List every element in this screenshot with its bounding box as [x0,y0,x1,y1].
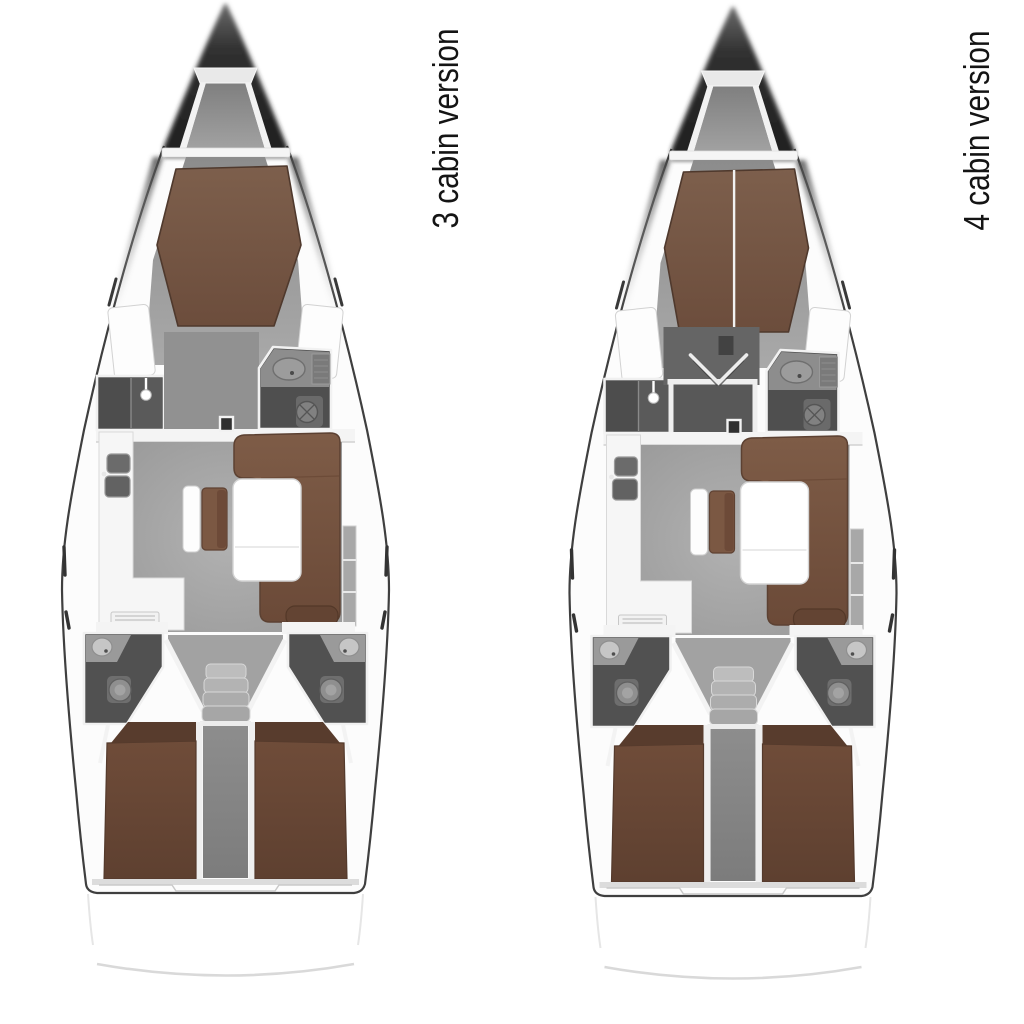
svg-text:4 cabin version: 4 cabin version [956,31,997,231]
svg-text:3 cabin version: 3 cabin version [425,29,466,229]
